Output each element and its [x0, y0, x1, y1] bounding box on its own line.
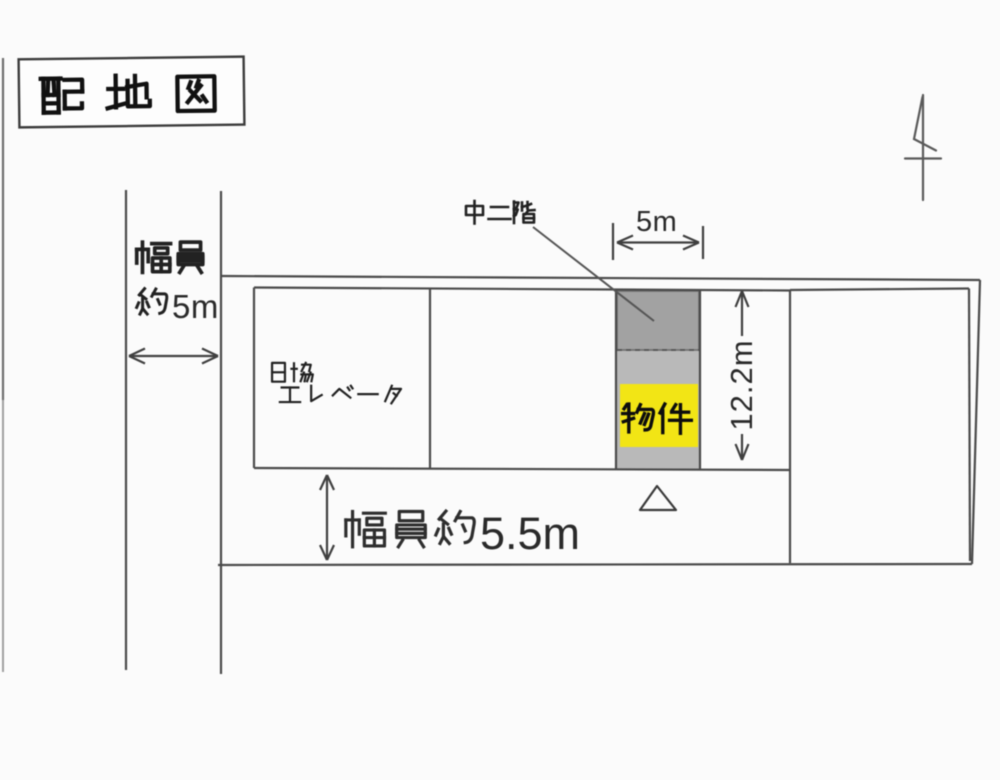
- svg-text:5.5m: 5.5m: [480, 508, 580, 559]
- svg-text:5m: 5m: [636, 206, 677, 238]
- svg-text:12.2m: 12.2m: [724, 339, 759, 430]
- svg-text:5m: 5m: [172, 288, 219, 325]
